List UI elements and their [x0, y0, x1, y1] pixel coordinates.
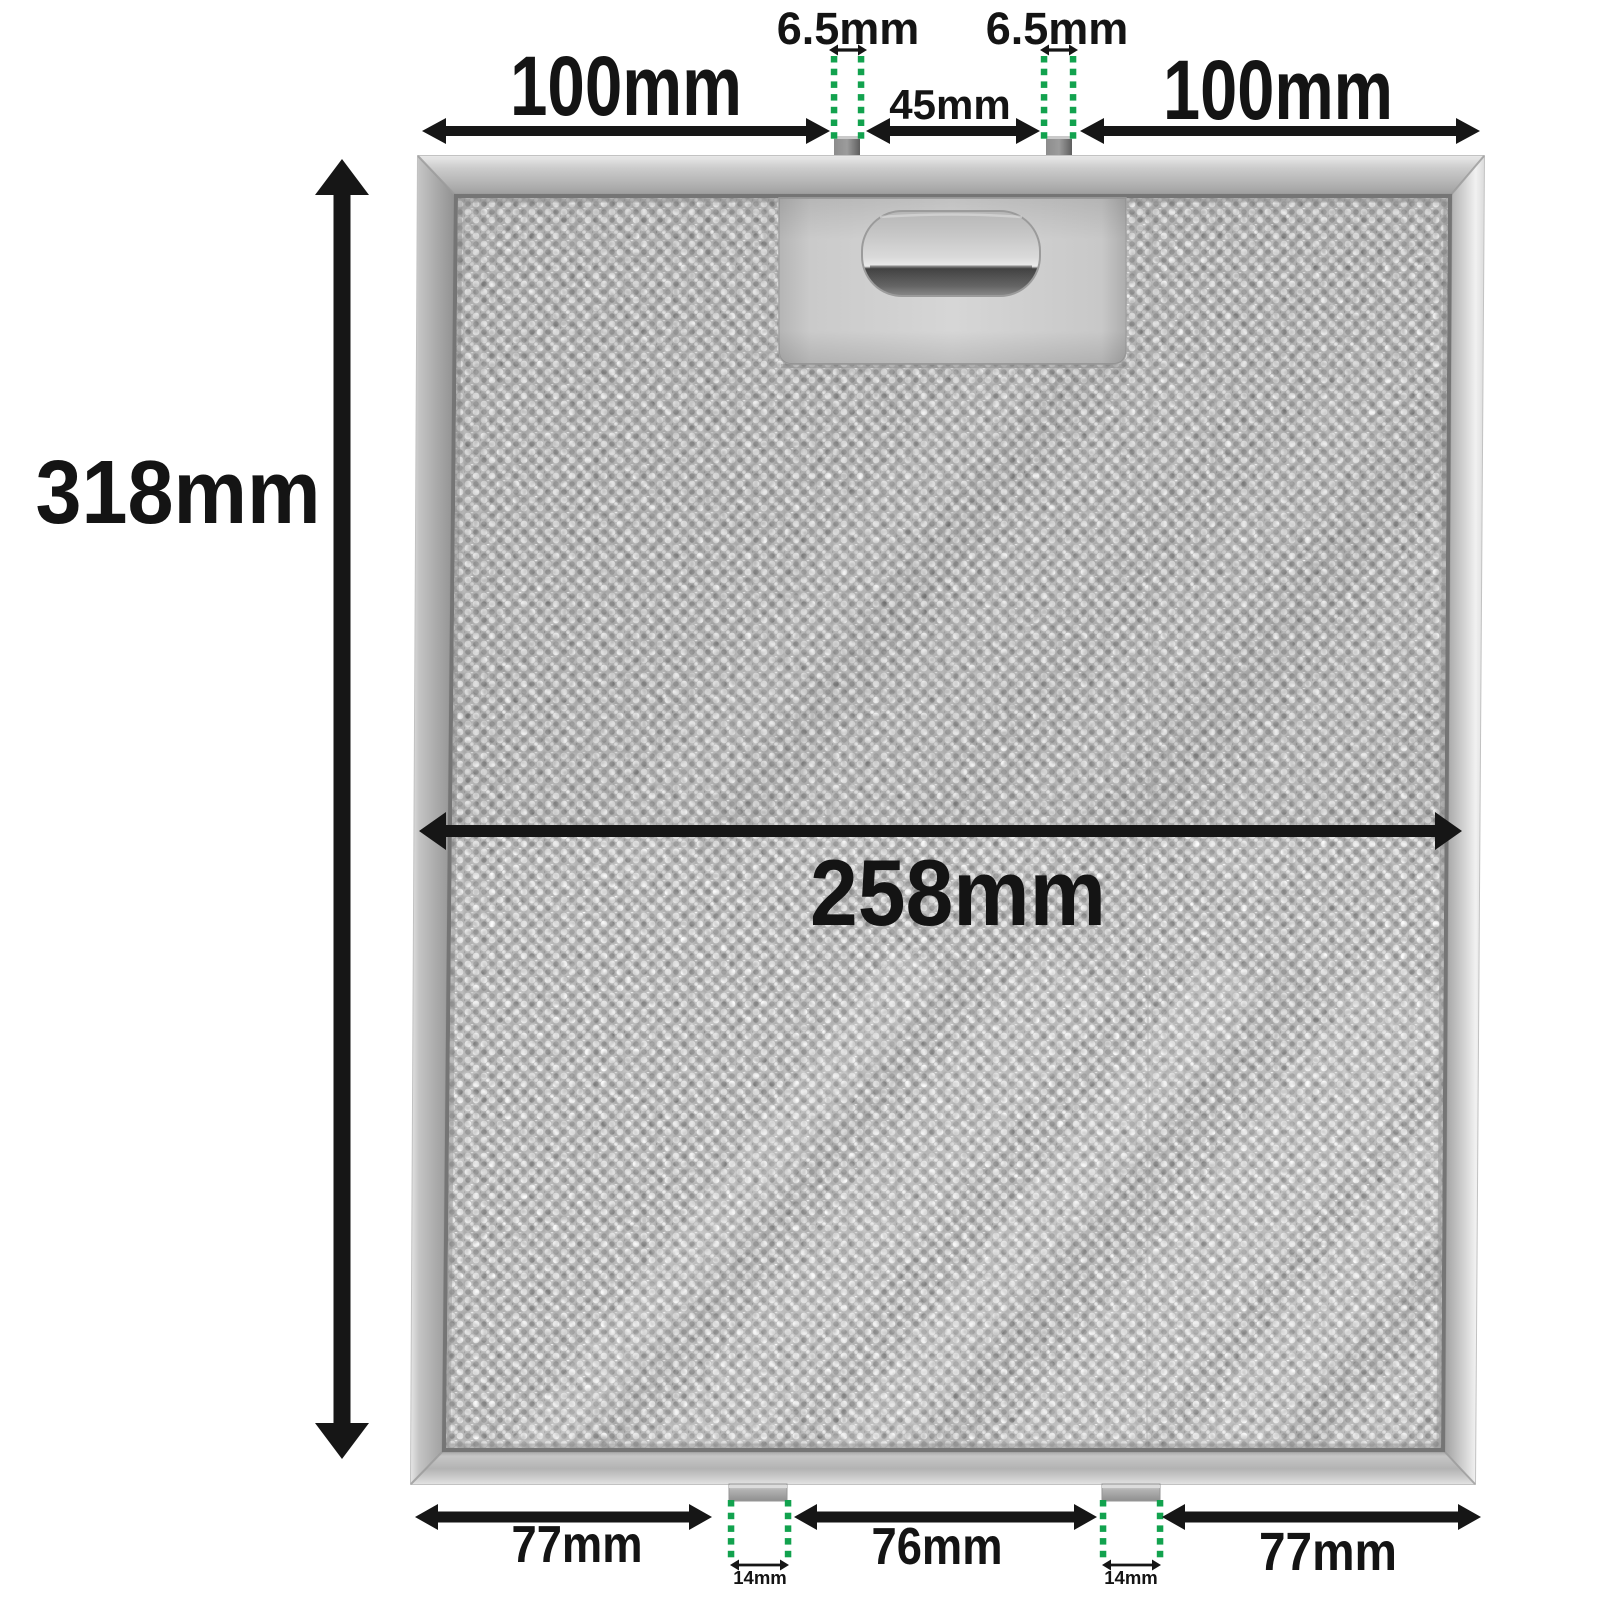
svg-text:77mm: 77mm [1259, 1522, 1397, 1582]
svg-text:14mm: 14mm [1104, 1567, 1157, 1588]
svg-text:258mm: 258mm [810, 840, 1106, 945]
svg-text:100mm: 100mm [1163, 43, 1393, 137]
svg-text:100mm: 100mm [510, 39, 742, 133]
svg-text:6.5mm: 6.5mm [777, 3, 920, 54]
svg-text:14mm: 14mm [733, 1567, 786, 1588]
svg-text:318mm: 318mm [36, 443, 321, 543]
svg-text:6.5mm: 6.5mm [986, 3, 1129, 54]
svg-text:45mm: 45mm [889, 81, 1010, 128]
svg-text:77mm: 77mm [512, 1516, 643, 1574]
svg-text:76mm: 76mm [872, 1518, 1003, 1576]
